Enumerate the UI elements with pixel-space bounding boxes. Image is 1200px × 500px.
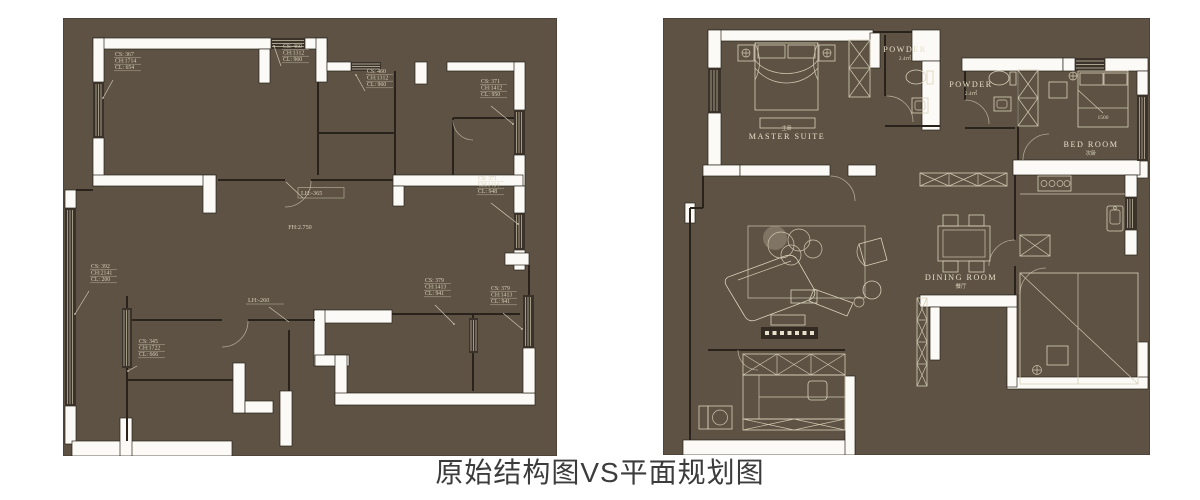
annotation-line: CS: 379: [491, 286, 510, 292]
annotation-line: CH:1413: [491, 293, 512, 299]
annotation-line: CS: 460: [283, 44, 302, 50]
annotation-line: CS: 379: [425, 278, 444, 284]
leader-tip: [102, 97, 104, 99]
room-name: POWDER: [883, 45, 927, 54]
annotation-line: LH:-365: [301, 190, 322, 197]
annotation-line: CL: 950: [481, 92, 500, 98]
leader-tip: [512, 123, 514, 125]
room-sublabel: 主卧: [781, 124, 793, 132]
leader-tip: [521, 328, 523, 330]
room-name: MASTER SUITE: [749, 132, 825, 141]
original-structure-plan: FH:2.750 CS: 367CH:1714CL: 654CS: 460CH:…: [63, 18, 557, 456]
annotation-line: CL: 666: [139, 352, 158, 358]
annotation-line: CL: 960: [283, 57, 302, 63]
floor-height-label: FH:2.750: [288, 224, 312, 231]
annotation-line: CS: 460: [367, 69, 386, 75]
room-sublabel: 2.4㎡: [965, 89, 978, 97]
annotation-line: CH:1714: [115, 59, 136, 65]
leader-tip: [355, 74, 357, 76]
annotation-line: LH:-260: [248, 297, 269, 304]
annotation-line: CL: 960: [367, 82, 386, 88]
annotation-line: CH:1312: [283, 51, 304, 57]
room-name: POWDER: [949, 80, 993, 89]
floorplan-comparison: FH:2.750 CS: 367CH:1714CL: 654CS: 460CH:…: [0, 0, 1200, 500]
room-sublabel: 餐厅: [955, 282, 967, 290]
annotation-line: CS: 345: [139, 339, 158, 345]
leader-tip: [453, 323, 455, 325]
plan-background: [663, 18, 1150, 455]
room-sublabel: 次卧: [1085, 149, 1097, 157]
annotation-line: CH:1414: [478, 183, 499, 189]
annotation-line: CH:1312: [367, 76, 388, 82]
annotation-line: CL: 941: [491, 299, 510, 305]
annotation-line: CH:1722: [139, 346, 160, 352]
annotation-line: CL: 948: [478, 189, 497, 195]
bed-width-label: 1500: [1098, 115, 1109, 121]
annotation-line: CS: 371: [481, 79, 500, 85]
leader-tip: [74, 313, 76, 315]
leader-tip: [517, 223, 519, 225]
annotation-line: CS: 371: [478, 176, 497, 182]
annotation-line: CL: 654: [115, 65, 134, 71]
layout-plan: MASTER SUITE主卧POWDER2.4㎡POWDER2.4㎡BED RO…: [663, 18, 1150, 455]
annotation-line: CH:1413: [425, 285, 446, 291]
annotation-line: CS: 367: [115, 52, 134, 58]
annotation-line: CL: 200: [91, 277, 110, 283]
caption: 原始结构图VS平面规划图: [0, 451, 1200, 491]
leader-tip: [273, 45, 275, 47]
annotation-line: CL: 941: [425, 291, 444, 297]
leader-tip: [127, 370, 129, 372]
annotation-line: CH:2141: [91, 271, 112, 277]
room-name: DINING ROOM: [925, 273, 997, 282]
room-name: BED ROOM: [1064, 140, 1119, 149]
annotation-line: CS: 392: [91, 264, 110, 270]
room-sublabel: 2.4㎡: [899, 54, 912, 62]
annotation-line: CH:1412: [481, 86, 502, 92]
